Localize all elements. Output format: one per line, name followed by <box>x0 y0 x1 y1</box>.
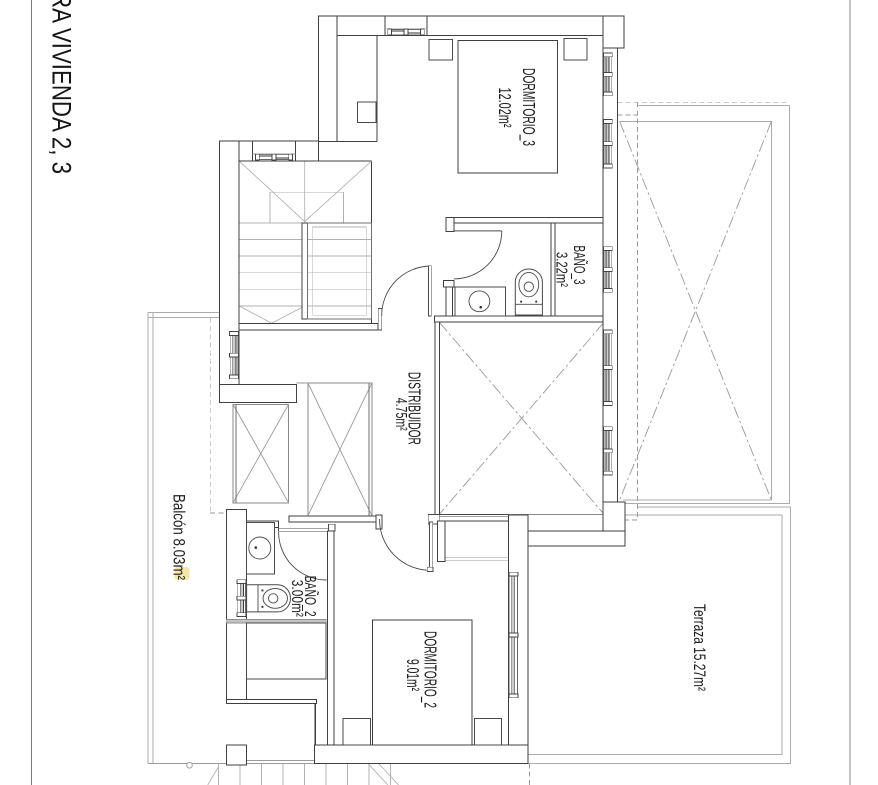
svg-text:3.00m²: 3.00m² <box>288 580 305 617</box>
svg-text:BAÑO_3: BAÑO_3 <box>570 246 590 285</box>
svg-text:RA VIVIENDA 2, 3: RA VIVIENDA 2, 3 <box>47 0 77 174</box>
svg-text:Terraza 15.27m²: Terraza 15.27m² <box>690 604 709 691</box>
svg-text:12.02m²: 12.02m² <box>495 88 515 128</box>
svg-text:3.22m²: 3.22m² <box>553 252 570 287</box>
svg-text:4.75m²: 4.75m² <box>392 398 409 431</box>
svg-text:DORMITORIO_3: DORMITORIO_3 <box>518 68 539 146</box>
svg-text:Balcón 8.03m²: Balcón 8.03m² <box>170 494 188 580</box>
svg-text:9.01m²: 9.01m² <box>403 659 423 691</box>
